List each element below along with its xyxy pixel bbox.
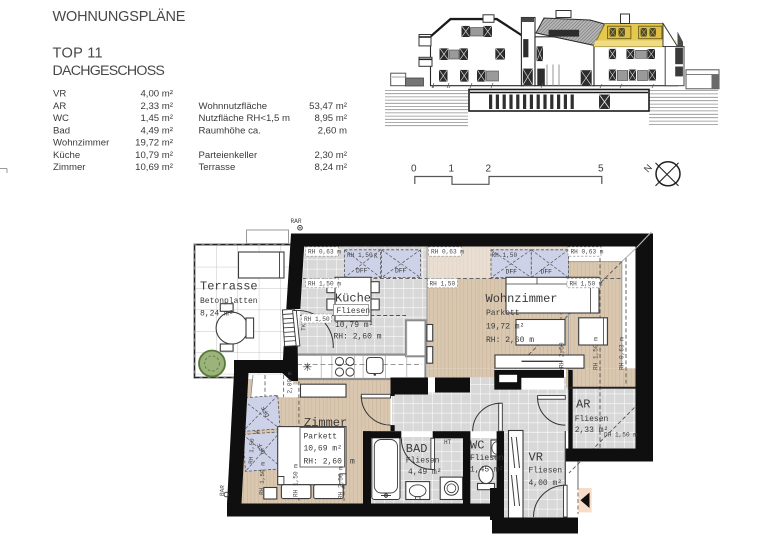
- svg-text:Parteienkeller: Parteienkeller: [199, 150, 258, 161]
- svg-text:Zimmer: Zimmer: [53, 162, 86, 173]
- svg-text:WOHNUNGSPLÄNE: WOHNUNGSPLÄNE: [53, 8, 186, 25]
- svg-text:53,47 m²: 53,47 m²: [309, 101, 348, 112]
- svg-text:Fliesen: Fliesen: [337, 307, 371, 316]
- svg-text:4,00 m²: 4,00 m²: [140, 89, 173, 100]
- svg-text:K: K: [374, 253, 378, 260]
- svg-text:2,30 m²: 2,30 m²: [314, 150, 347, 161]
- svg-text:4,00 m²: 4,00 m²: [529, 479, 563, 488]
- svg-text:Raumhöhe ca.: Raumhöhe ca.: [199, 125, 261, 136]
- svg-text:Zimmer: Zimmer: [304, 416, 347, 430]
- svg-text:Betonplatten: Betonplatten: [200, 297, 258, 306]
- svg-text:RH 1,50 m: RH 1,50 m: [308, 280, 341, 287]
- svg-text:2: 2: [486, 164, 492, 175]
- svg-text:Terrasse: Terrasse: [200, 280, 258, 294]
- svg-text:RH 0,63 m: RH 0,63 m: [308, 249, 341, 256]
- svg-text:8,95 m²: 8,95 m²: [314, 113, 347, 124]
- svg-text:TOP 11: TOP 11: [53, 46, 103, 62]
- svg-text:4,49 m²: 4,49 m²: [140, 125, 173, 136]
- svg-text:RH: 2,60: RH: 2,60: [304, 458, 343, 467]
- svg-text:RH: 2,60 m: RH: 2,60 m: [334, 333, 382, 342]
- svg-text:RH 0,63 m: RH 0,63 m: [431, 249, 464, 256]
- svg-text:DFF: DFF: [395, 268, 407, 275]
- svg-text:4,49 m²: 4,49 m²: [408, 468, 442, 477]
- svg-text:10,69 m²: 10,69 m²: [304, 445, 342, 454]
- svg-text:m: m: [350, 458, 355, 467]
- svg-text:Wohnnutzfläche: Wohnnutzfläche: [199, 101, 268, 112]
- svg-text:Parkett: Parkett: [304, 433, 338, 442]
- svg-text:19,72 m²: 19,72 m²: [486, 323, 524, 332]
- svg-text:RAR: RAR: [219, 485, 227, 497]
- svg-text:AR: AR: [53, 101, 66, 112]
- svg-text:Wohnzimmer: Wohnzimmer: [53, 138, 110, 149]
- svg-text:Wohnzimmer: Wohnzimmer: [486, 292, 558, 306]
- svg-text:DH 1,50 m: DH 1,50 m: [604, 432, 637, 439]
- svg-text:8,24 m²: 8,24 m²: [314, 162, 347, 173]
- svg-text:DFF: DFF: [506, 269, 518, 276]
- svg-text:TK: TK: [300, 323, 307, 331]
- svg-text:RH 1,50 m: RH 1,50 m: [570, 280, 603, 287]
- svg-text:Küche: Küche: [335, 292, 371, 306]
- svg-text:AR: AR: [576, 398, 590, 412]
- svg-text:5: 5: [598, 164, 604, 175]
- svg-text:10,79 m²: 10,79 m²: [135, 150, 174, 161]
- svg-text:RAR: RAR: [291, 218, 302, 225]
- svg-text:Bad: Bad: [53, 125, 70, 136]
- svg-text:Fliesen: Fliesen: [575, 415, 609, 424]
- svg-text:RH 1,50: RH 1,50: [248, 438, 256, 464]
- svg-text:BAD: BAD: [406, 442, 428, 456]
- svg-text:8,24 m²: 8,24 m²: [200, 310, 234, 319]
- svg-text:0: 0: [411, 164, 417, 175]
- svg-text:RH 1,50: RH 1,50: [304, 316, 330, 323]
- svg-text:Parkett: Parkett: [486, 309, 520, 318]
- svg-text:WC: WC: [53, 113, 69, 124]
- svg-text:HT: HT: [444, 439, 452, 446]
- svg-text:Nutzfläche RH<1,5 m: Nutzfläche RH<1,5 m: [199, 113, 290, 124]
- svg-text:RH 1,50: RH 1,50: [430, 280, 456, 287]
- svg-text:WC: WC: [470, 439, 484, 453]
- svg-text:2,00 m: 2,00 m: [287, 371, 294, 393]
- svg-text:RH 0,63 m: RH 0,63 m: [571, 249, 604, 256]
- svg-text:DFF: DFF: [541, 269, 553, 276]
- svg-text:19,72 m²: 19,72 m²: [135, 138, 174, 149]
- svg-text:2,60 m: 2,60 m: [318, 125, 347, 136]
- svg-text:RH 1,50: RH 1,50: [347, 252, 373, 259]
- svg-text:VR: VR: [529, 451, 543, 465]
- svg-text:10,69 m²: 10,69 m²: [135, 162, 174, 173]
- svg-text:RH 1,50 m: RH 1,50 m: [293, 464, 300, 497]
- svg-text:10,79 m²: 10,79 m²: [335, 321, 373, 330]
- svg-text:N: N: [642, 162, 655, 175]
- svg-text:RH 1,50 m: RH 1,50 m: [593, 337, 600, 370]
- svg-text:VR: VR: [53, 89, 66, 100]
- svg-text:Fliesen: Fliesen: [470, 454, 504, 463]
- svg-text:RH: 2,60 m: RH: 2,60 m: [486, 336, 534, 345]
- svg-text:Fliesen: Fliesen: [406, 457, 440, 466]
- svg-text:Küche: Küche: [53, 150, 80, 161]
- svg-text:DACHGESCHOSS: DACHGESCHOSS: [53, 63, 165, 79]
- svg-text:RH 0,63 m: RH 0,63 m: [619, 337, 626, 370]
- svg-text:1,45 m²: 1,45 m²: [140, 113, 173, 124]
- svg-text:✳: ✳: [303, 362, 313, 374]
- svg-text:1: 1: [449, 164, 455, 175]
- svg-text:RH 1,50: RH 1,50: [492, 252, 518, 259]
- svg-text:2,33 m²: 2,33 m²: [140, 101, 173, 112]
- svg-text:Fliesen: Fliesen: [529, 467, 563, 476]
- svg-text:1,45 m²: 1,45 m²: [470, 466, 504, 475]
- svg-text:RH 2,50: RH 2,50: [559, 342, 566, 368]
- svg-text:DFF: DFF: [356, 268, 368, 275]
- svg-text:RH 2,50 m: RH 2,50 m: [338, 466, 345, 499]
- svg-text:Terrasse: Terrasse: [199, 162, 236, 173]
